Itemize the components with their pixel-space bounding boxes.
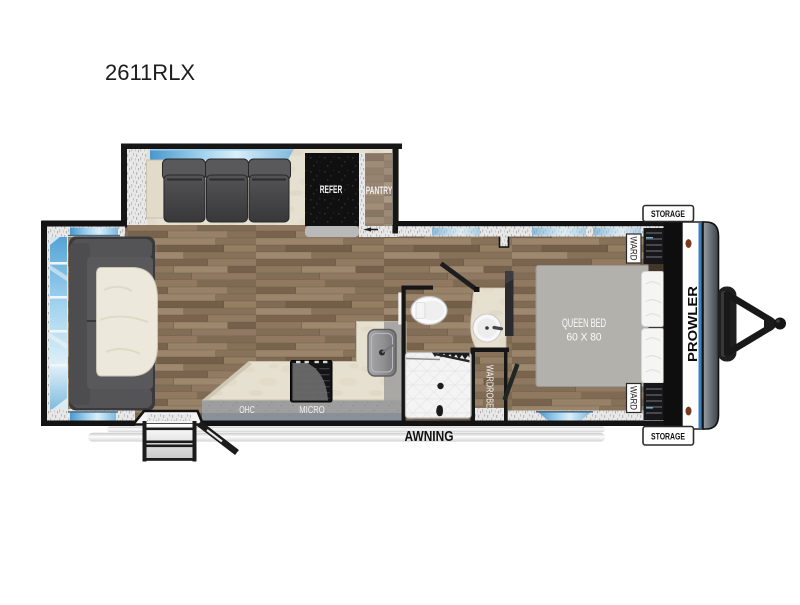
svg-text:60 X 80: 60 X 80 [567,332,602,344]
svg-text:2611RLX: 2611RLX [105,60,195,85]
svg-text:STORAGE: STORAGE [651,209,685,220]
svg-text:OHC: OHC [239,405,255,416]
svg-text:WARD: WARD [629,386,639,410]
svg-text:WARDROBE: WARDROBE [484,365,495,408]
svg-text:QUEEN BED: QUEEN BED [562,316,606,330]
svg-text:MICRO: MICRO [299,405,325,416]
svg-text:WARD: WARD [629,237,639,261]
svg-text:PANTRY: PANTRY [366,185,393,197]
svg-text:STORAGE: STORAGE [651,432,685,443]
svg-text:REFER: REFER [320,184,343,196]
svg-text:AWNING: AWNING [405,429,454,445]
svg-text:PROWLER: PROWLER [685,285,700,362]
